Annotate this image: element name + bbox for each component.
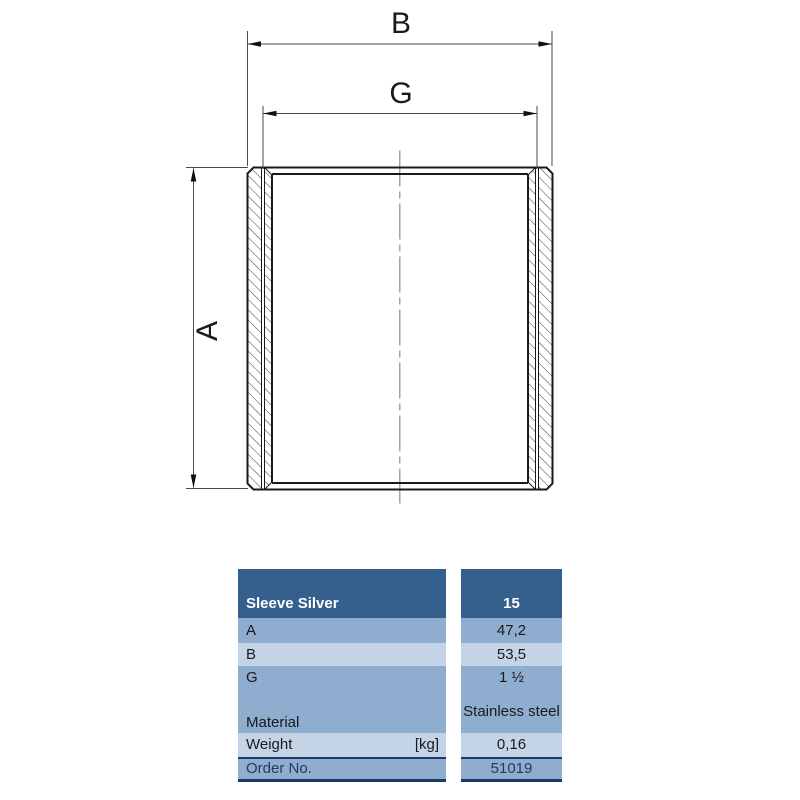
- table-header-size: 15: [461, 569, 562, 618]
- page: B G A Sleeve Silver A B G: [0, 0, 800, 800]
- table-row-material-label: Material: [238, 689, 446, 733]
- table-row-order-label: Order No.: [238, 757, 446, 782]
- technical-drawing: B G A: [0, 0, 800, 560]
- table-row-a-label: A: [238, 618, 446, 643]
- spec-table-labels: Sleeve Silver A B G Material Weight [kg]…: [238, 569, 446, 782]
- table-header-product: Sleeve Silver: [238, 569, 446, 618]
- table-row-material-value: Stainless steel: [461, 689, 562, 733]
- table-row-g-label: G: [238, 666, 446, 689]
- weight-unit: [kg]: [415, 733, 439, 757]
- table-row-weight-label: Weight [kg]: [238, 733, 446, 757]
- dim-label-g: G: [389, 77, 412, 110]
- table-row-a-value: 47,2: [461, 618, 562, 643]
- dim-label-a: A: [191, 321, 224, 341]
- size-value: 15: [503, 595, 520, 612]
- table-row-b-label: B: [238, 643, 446, 666]
- table-row-order-value: 51019: [461, 757, 562, 782]
- table-row-weight-value: 0,16: [461, 733, 562, 757]
- material-value: Stainless steel: [463, 701, 560, 722]
- product-name: Sleeve Silver: [246, 595, 339, 612]
- table-row-g-value: 1 ½: [461, 666, 562, 689]
- table-row-b-value: 53,5: [461, 643, 562, 666]
- spec-table-values: 15 47,2 53,5 1 ½ Stainless steel 0,16 51…: [461, 569, 562, 782]
- weight-label: Weight: [246, 733, 292, 757]
- dim-label-b: B: [391, 7, 411, 40]
- material-label: Material: [246, 714, 299, 731]
